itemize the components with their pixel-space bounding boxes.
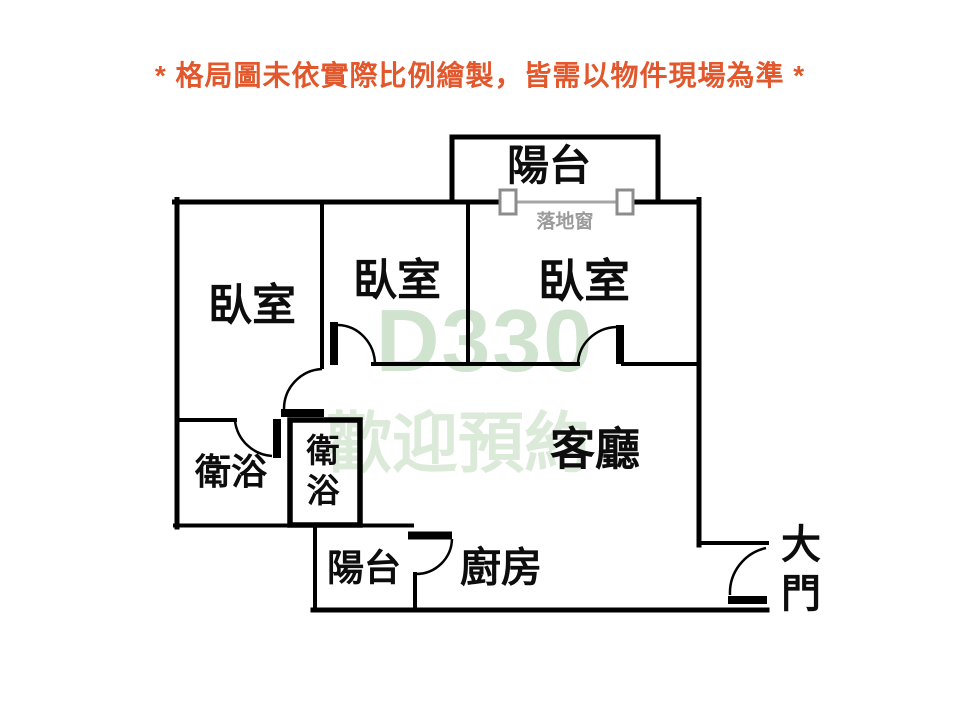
label-bathroom-left: 衛浴 <box>195 454 267 490</box>
label-kitchen: 廚房 <box>460 548 542 589</box>
label-main-door: 大門 <box>779 521 823 619</box>
window-jamb-left <box>500 190 516 214</box>
kitchen-door-arc <box>416 539 452 574</box>
window-jamb-right <box>617 190 633 214</box>
label-bathroom-right: 衛浴 <box>305 431 341 512</box>
floor-window-symbol <box>500 190 633 214</box>
bedroom-right-door-arc <box>578 327 616 364</box>
floorplan-image: * 格局圖未依實際比例繪製，皆需以物件現場為準 * D330 歡迎預約 <box>0 0 960 720</box>
bedroom-left-door-arc <box>284 369 322 409</box>
label-floor-window: 落地窗 <box>536 213 593 232</box>
label-bedroom-right: 臥室 <box>538 258 630 304</box>
bedroom-middle-door-arc <box>338 325 375 365</box>
label-bedroom-middle: 臥室 <box>353 259 441 303</box>
label-bedroom-left: 臥室 <box>208 284 296 328</box>
main-door-arc <box>730 548 766 595</box>
label-balcony-top: 陽台 <box>507 145 591 187</box>
label-balcony-bottom: 陽台 <box>327 550 401 587</box>
walls <box>175 137 768 610</box>
label-living-room: 客廳 <box>550 427 640 472</box>
